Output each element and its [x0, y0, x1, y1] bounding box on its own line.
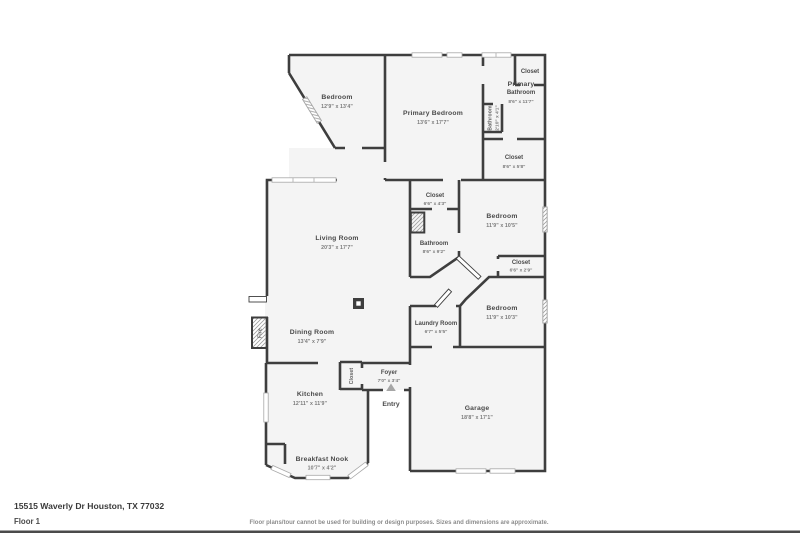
room-dims-bedroom-103: 11'9" x 10'3" [486, 315, 518, 321]
room-label-foyer: Foyer [381, 370, 398, 376]
room-dims-dining: 13'4" x 7'9" [298, 339, 327, 345]
room-label-closet-29: Closet [512, 260, 530, 266]
room-label-bedroom-tl: Bedroom [321, 94, 352, 101]
room-label-closet-43: Closet [426, 193, 444, 199]
room-label-bedroom-105: Bedroom [486, 213, 517, 220]
room-dims-primary-bathroom: 8'6" x 11'7" [508, 99, 533, 105]
window [264, 393, 268, 422]
room-label-primary-bathroom-2: Bathroom [507, 90, 535, 96]
fireplace-label: Fire [258, 328, 264, 338]
room-dims-primary-bedroom: 13'6" x 17'7" [417, 120, 449, 126]
window [272, 178, 336, 182]
room-label-primary-bathroom-1: Primary [508, 81, 535, 88]
room-label-bathroom-92: Bathroom [420, 241, 448, 247]
window [447, 53, 462, 57]
entry-label: Entry [382, 401, 400, 408]
room-label-closet-foyer: Closet [349, 368, 355, 385]
window [412, 53, 442, 57]
disclaimer-text: Floor plans/tour cannot be used for buil… [249, 520, 548, 526]
room-dims-foyer: 7'0" x 3'4" [378, 378, 401, 384]
room-dims-bathroom-small: 2'10" x 4'1" [495, 105, 501, 131]
room-dims-living: 20'3" x 17'7" [321, 245, 353, 251]
room-label-primary-bedroom: Primary Bedroom [403, 110, 463, 117]
room-dims-laundry: 6'7" x 5'5" [425, 329, 448, 335]
garage-door [456, 469, 486, 473]
address-text: 15515 Waverly Dr Houston, TX 77032 [14, 501, 164, 511]
garage-door [490, 469, 515, 473]
room-label-laundry: Laundry Room [415, 321, 457, 327]
room-dims-breakfast: 10'7" x 4'2" [308, 466, 337, 472]
shower-box [411, 213, 425, 233]
room-label-closet-58: Closet [505, 155, 523, 161]
room-label-dining: Dining Room [290, 329, 335, 336]
room-label-bathroom-small: Bathroom [488, 105, 494, 131]
room-label-kitchen: Kitchen [297, 391, 323, 398]
room-label-closet-tr: Closet [521, 69, 539, 75]
room-label-bedroom-103: Bedroom [486, 305, 517, 312]
room-dims-bedroom-tl: 12'9" x 13'4" [321, 104, 353, 110]
window [306, 475, 330, 479]
room-label-garage: Garage [465, 405, 490, 412]
room-dims-garage: 18'8" x 17'1" [461, 415, 493, 421]
room-label-living: Living Room [315, 235, 358, 242]
floor-plan-page: Fire Entry Bedroom [0, 0, 800, 533]
window [482, 53, 511, 57]
room-dims-kitchen: 12'11" x 11'9" [293, 401, 328, 407]
room-dims-closet-29: 6'6" x 2'9" [510, 268, 533, 274]
room-dims-closet-43: 6'6" x 4'3" [424, 201, 447, 207]
room-dims-bedroom-105: 11'9" x 10'5" [486, 223, 518, 229]
room-label-breakfast: Breakfast Nook [296, 456, 349, 463]
floor-plan-canvas: Fire Entry Bedroom [0, 0, 800, 533]
room-dims-closet-58: 8'6" x 5'8" [503, 164, 526, 170]
room-dims-bathroom-92: 8'6" x 9'2" [423, 249, 446, 255]
floor-label: Floor 1 [14, 517, 41, 526]
column [353, 298, 364, 309]
